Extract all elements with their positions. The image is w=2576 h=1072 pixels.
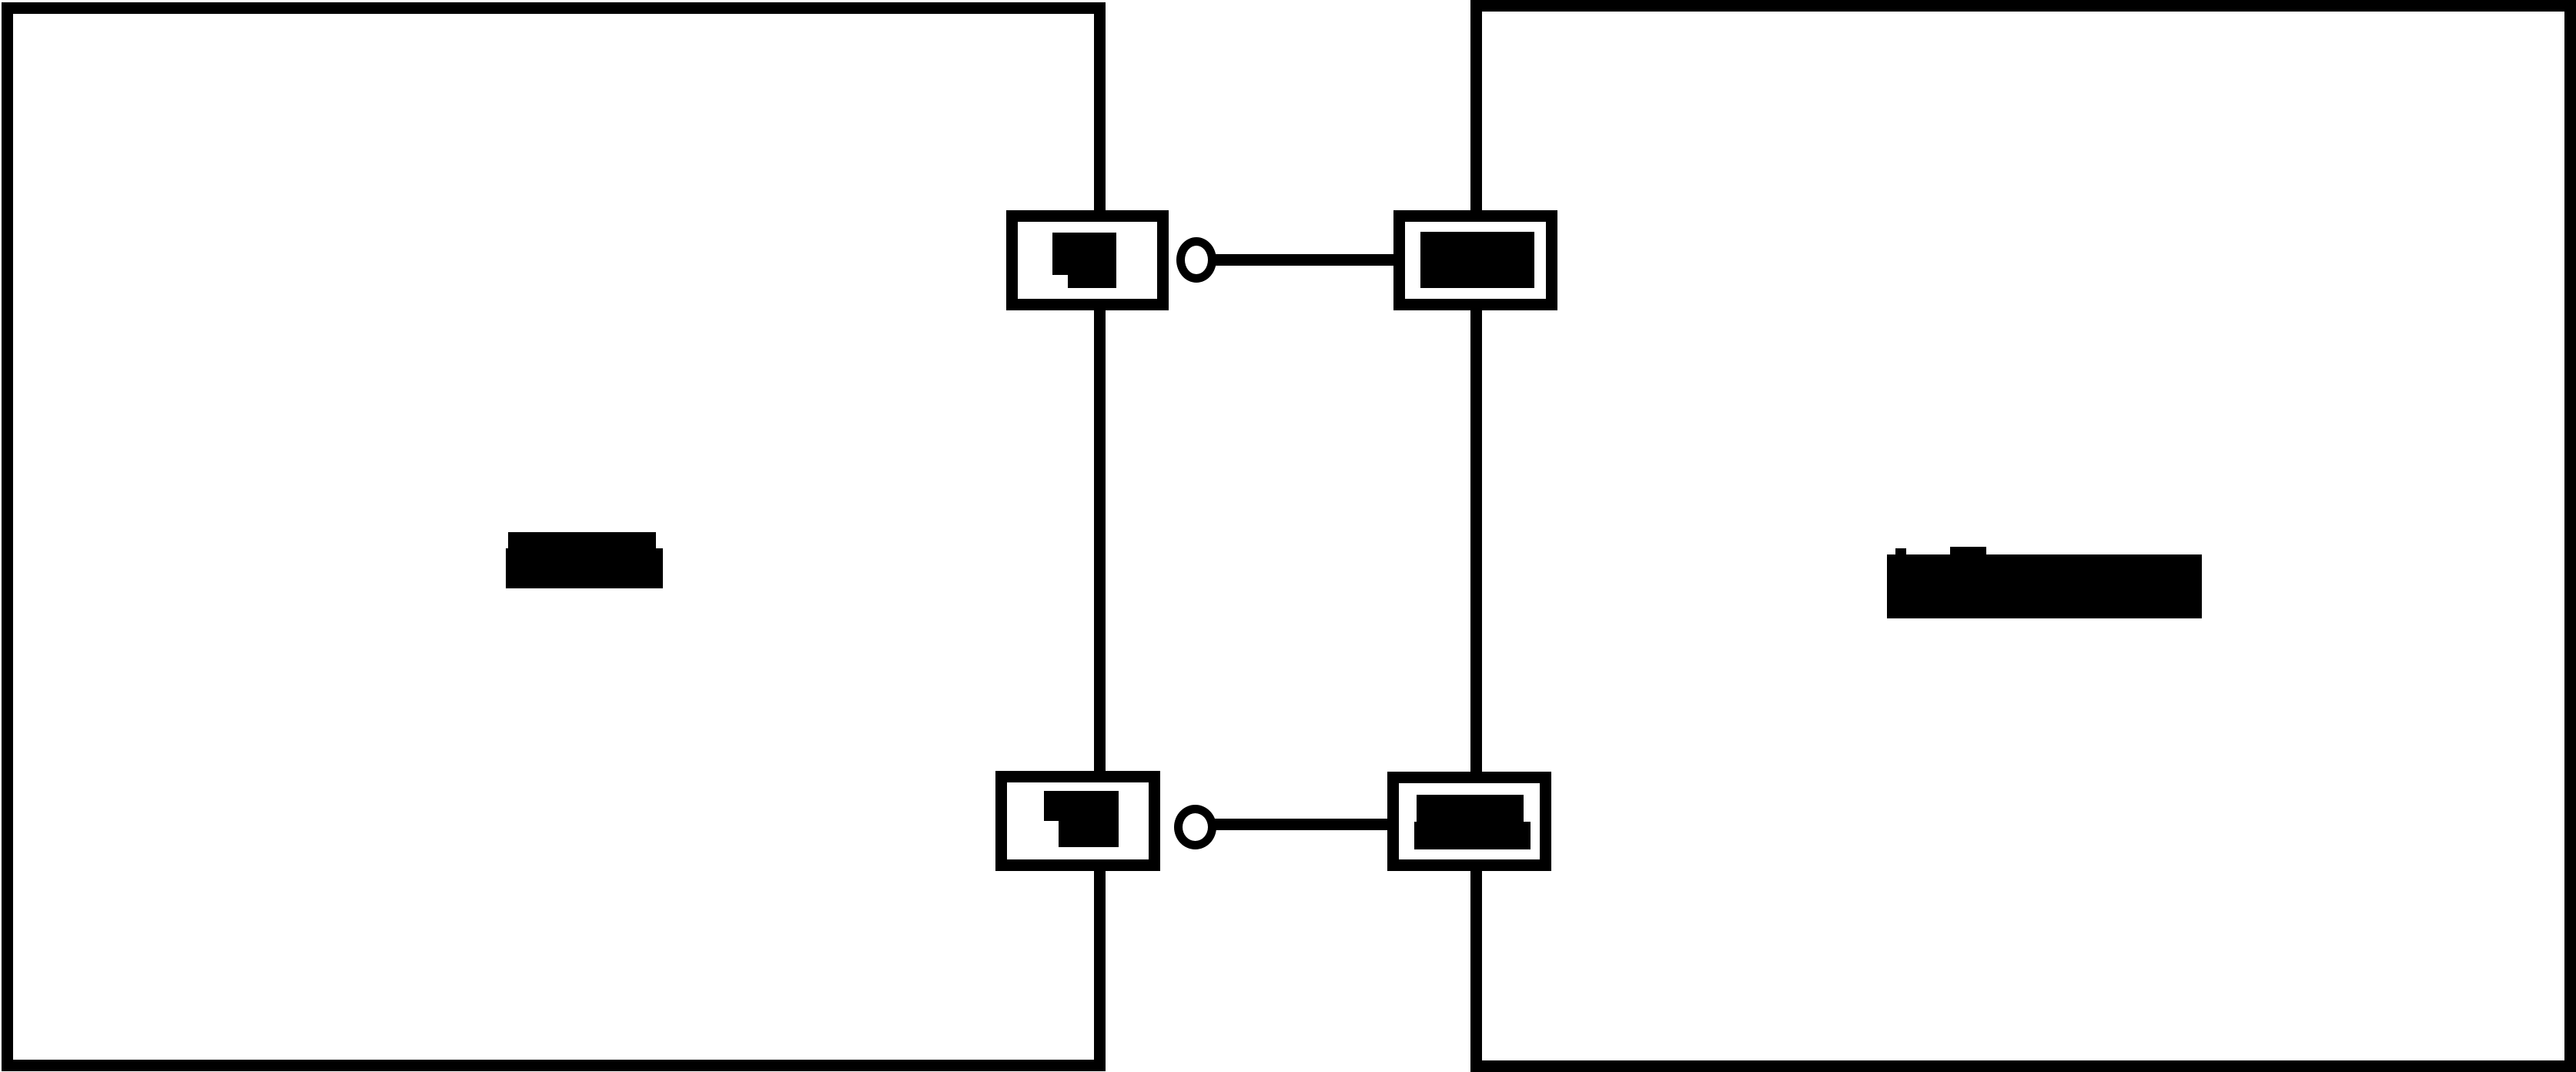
left-bottom-port-redacted-label xyxy=(1044,791,1119,821)
right-bottom-port-redacted-label xyxy=(1417,795,1524,822)
right-component-redacted-label xyxy=(1887,554,2202,618)
left-top-port-redacted-label xyxy=(1052,233,1116,275)
right-top-port-redacted-label xyxy=(1420,232,1534,288)
left-top-port-redacted-label xyxy=(1068,275,1116,288)
right-bottom-port-redacted-label xyxy=(1414,822,1531,849)
top-interface-connector-line xyxy=(1213,254,1395,266)
left-component-redacted-label xyxy=(506,548,663,588)
diagram-canvas xyxy=(0,0,2576,1072)
bottom-interface-connector-line xyxy=(1213,819,1389,830)
top-lollipop-interface-circle xyxy=(1176,237,1216,283)
left-bottom-port-redacted-label xyxy=(1059,821,1119,847)
left-component-redacted-label xyxy=(508,532,656,548)
bottom-lollipop-interface-circle xyxy=(1174,805,1216,849)
right-component-redacted-label xyxy=(1895,548,1906,556)
right-component-redacted-label xyxy=(1950,547,1986,556)
right-component-box xyxy=(1470,0,2576,1072)
